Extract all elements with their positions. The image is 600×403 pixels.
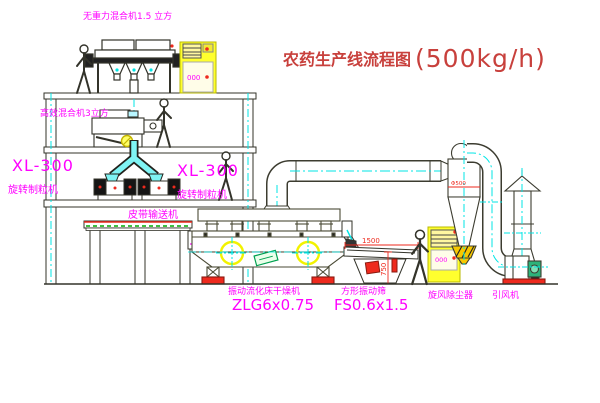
person-top-floor <box>77 45 91 93</box>
cabinet-top-display: 000 <box>187 74 200 82</box>
label-dryer-model: ZLG6x0.75 <box>232 298 314 313</box>
title-chinese: 农药生产线流程图 <box>283 46 411 73</box>
label-high-eff-mixer: 高效混合机3立方 <box>40 110 109 119</box>
label-cyclone: 旋风除尘器 <box>428 292 473 301</box>
screen-height-dim: 750 <box>380 263 388 276</box>
label-fan: 引风机 <box>492 292 519 301</box>
screen-length-dim: 1500 <box>362 237 380 245</box>
label-granulator-left-model: XL-300 <box>12 158 74 174</box>
vibrating-screen <box>344 239 418 284</box>
label-belt-conveyor: 皮带输送机 <box>128 211 178 221</box>
label-granulator-right-model: XL-300 <box>177 163 239 179</box>
granulator-left <box>94 179 136 200</box>
diagram-title: 农药生产线流程图(500kg/h) <box>283 44 546 73</box>
title-capacity: (500kg/h) <box>415 44 546 73</box>
granulator-right <box>138 179 180 200</box>
label-granulator-right-name: 旋转制粒机 <box>177 191 227 201</box>
belt-conveyor <box>84 221 192 231</box>
label-gravity-mixer: 无重力混合机1.5 立方 <box>83 13 172 22</box>
dryer-ports <box>205 221 333 231</box>
dryer-spring-right <box>312 267 334 284</box>
label-screen-model: FS0.6x1.5 <box>334 298 408 313</box>
label-granulator-left-name: 旋转制粒机 <box>8 186 58 196</box>
cyclone-dia-dim: Φ500 <box>451 181 466 187</box>
fluid-bed-dryer <box>188 209 350 284</box>
flow-diagram-canvas: 000 <box>0 0 600 403</box>
gravity-free-mixer <box>85 40 181 93</box>
cabinet-right-display: 000 <box>435 256 447 264</box>
induced-draft-fan <box>498 256 548 284</box>
control-cabinet-top <box>180 42 216 93</box>
dryer-spring-left <box>202 267 224 284</box>
